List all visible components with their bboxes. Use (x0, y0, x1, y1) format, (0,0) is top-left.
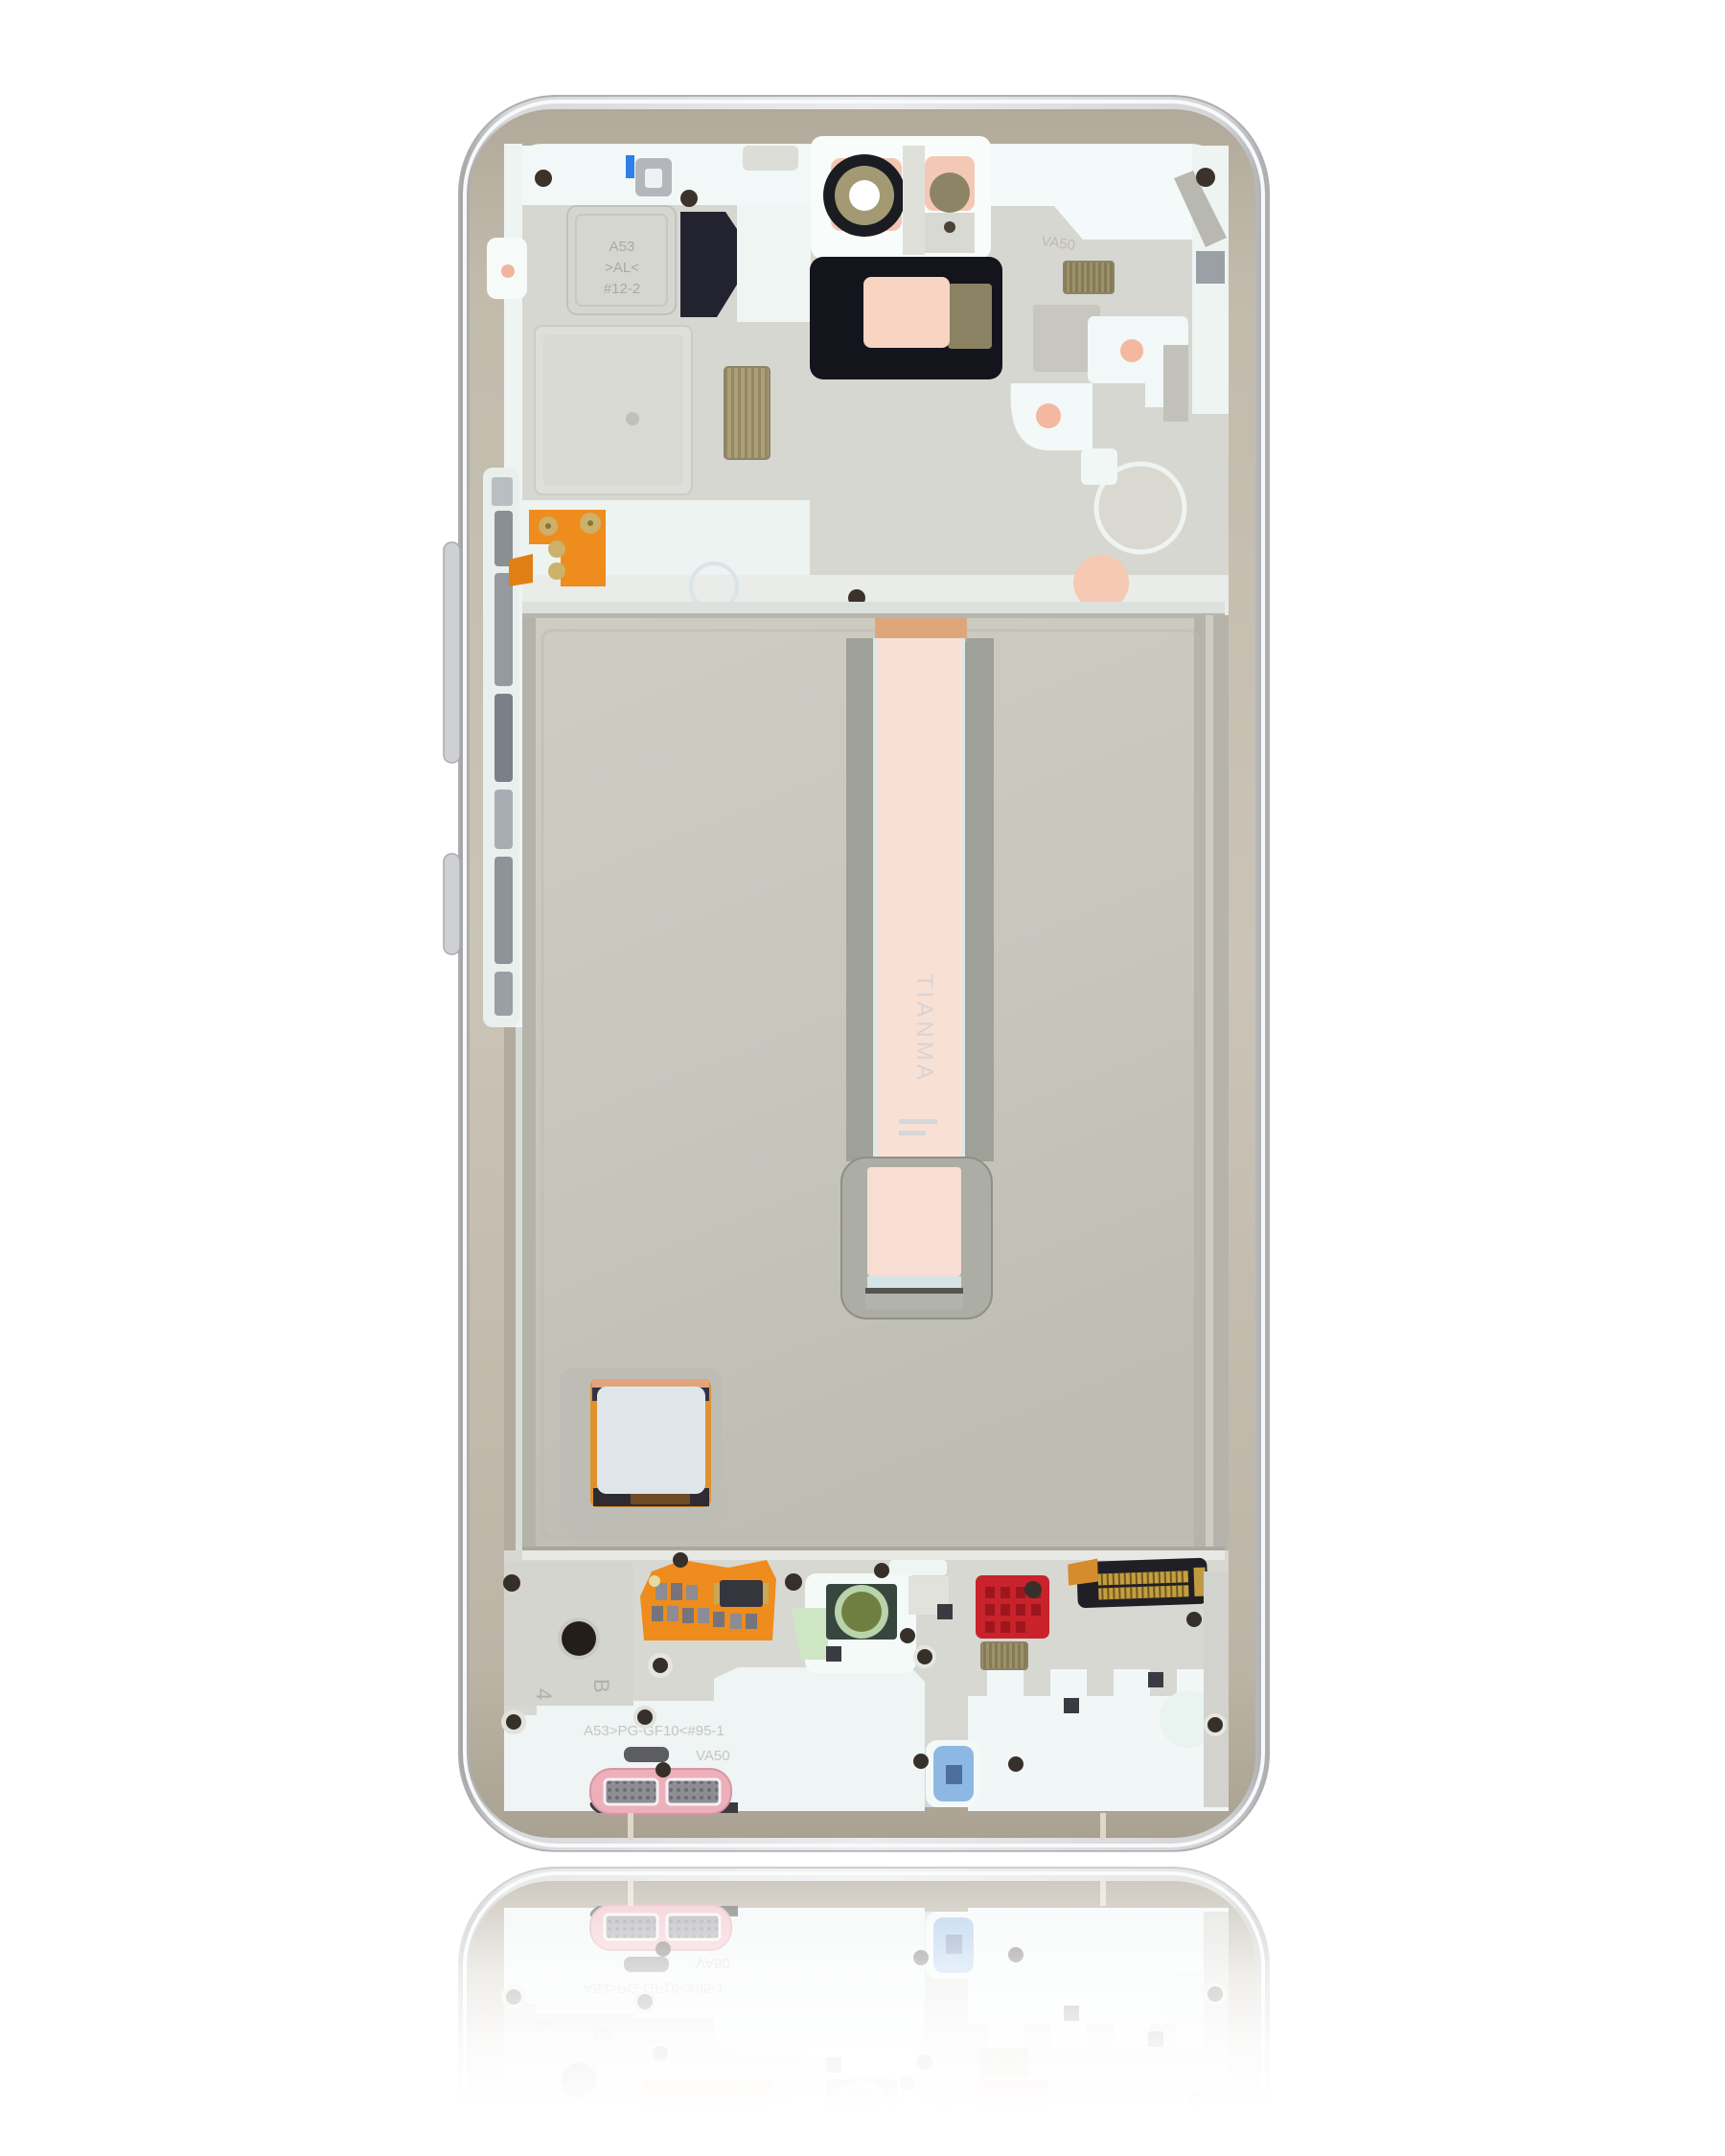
svg-text:>AL<: >AL< (605, 260, 639, 276)
svg-text:#12-2: #12-2 (604, 281, 640, 297)
svg-text:A53: A53 (609, 239, 635, 255)
svg-text:4: 4 (532, 1688, 556, 1700)
svg-text:B: B (589, 1679, 613, 1693)
svg-text:A53>PG-GF10<#95-1: A53>PG-GF10<#95-1 (584, 1723, 724, 1739)
svg-text:TIANMA: TIANMA (911, 974, 937, 1084)
svg-text:VA50: VA50 (696, 1748, 730, 1764)
